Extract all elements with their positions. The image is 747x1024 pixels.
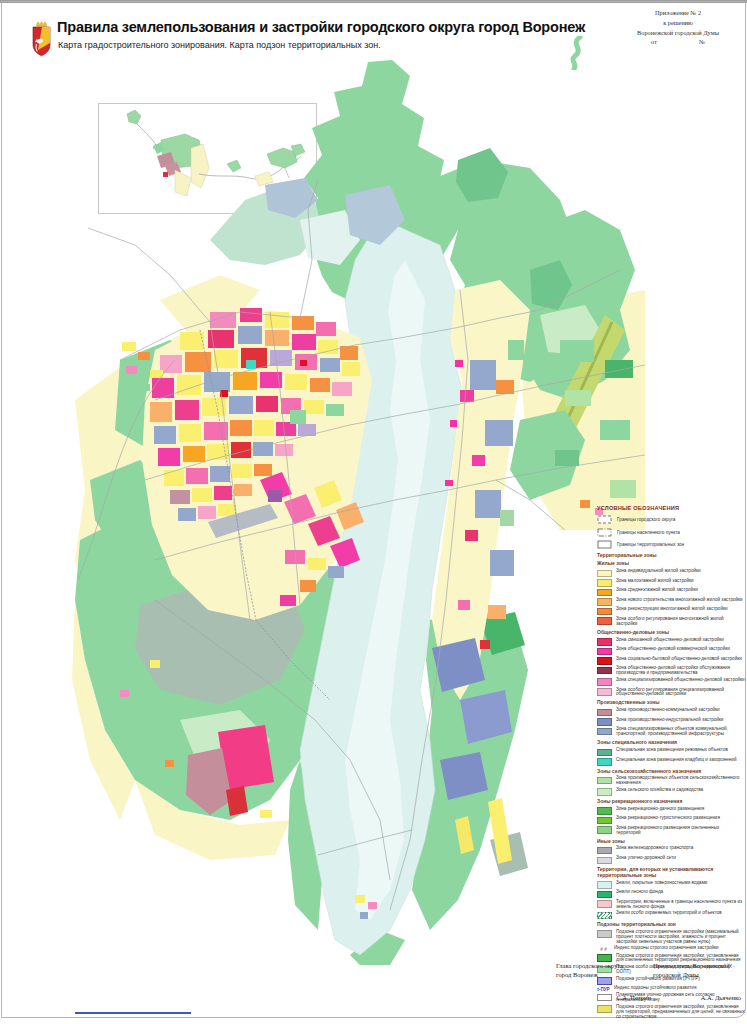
legend-label: Зона производственно-коммунальной застро… bbox=[616, 708, 720, 713]
legend-item: Специальная зона размещения кладбищ и за… bbox=[597, 758, 745, 766]
legend-item: Зона особого регулирования многоэтажной … bbox=[597, 617, 745, 627]
legend-boundary-item: Границы территориальных зон bbox=[597, 540, 745, 549]
legend-color-swatch bbox=[597, 728, 612, 736]
legend-color-swatch bbox=[597, 930, 612, 938]
legend-boundary-item: Границы городского округа bbox=[597, 515, 745, 524]
legend-label: Зона реконструкции многоэтажной жилой за… bbox=[616, 607, 728, 612]
legend-item: Земли лесного фонда bbox=[597, 890, 745, 898]
page-subtitle: Карта градостроительного зонирования. Ка… bbox=[58, 40, 381, 50]
legend-item: Зона особого регулирования специализиров… bbox=[597, 688, 745, 698]
legend-label: Зона общественно-деловой застройки обслу… bbox=[616, 666, 745, 676]
legend-item: Подзона строгого ограничения застройки (… bbox=[597, 930, 745, 945]
page-top-edge bbox=[0, 0, 747, 3]
legend-color-swatch bbox=[597, 678, 612, 686]
legend-label: Зона особого регулирования специализиров… bbox=[616, 688, 745, 698]
legend-label: Зона сельского хозяйства и садоводства bbox=[616, 788, 703, 793]
legend-color-swatch bbox=[597, 912, 612, 920]
legend-item: Зона специализированных объектов коммуна… bbox=[597, 727, 745, 737]
legend-item: Зона производственно-коммунальной застро… bbox=[597, 708, 745, 716]
legend-label: Зона рекреационно-дачного размещения bbox=[616, 807, 704, 812]
legend-section-header: Территории, для которых не устанавливают… bbox=[597, 867, 745, 879]
legend-label: Территории, включенные в границы населен… bbox=[616, 900, 745, 910]
legend-label: Границы территориальных зон bbox=[617, 542, 684, 547]
legend-section-header: Иные зоны bbox=[597, 839, 745, 845]
legend-section-header: Территориальные зоны bbox=[597, 553, 745, 559]
legend-label: Зона смешанной общественно-деловой застр… bbox=[616, 638, 724, 643]
legend-item: Зона среднеэтажной жилой застройки bbox=[597, 588, 745, 596]
legend-section-header: Жилые зоны bbox=[597, 561, 745, 567]
legend-label: Зона малоэтажной жилой застройки bbox=[616, 579, 694, 584]
legend-color-swatch bbox=[597, 826, 612, 834]
legend-color-swatch bbox=[597, 954, 612, 962]
legend-color-swatch bbox=[597, 891, 612, 899]
map-sheet-page: Правила землепользования и застройки гор… bbox=[0, 0, 747, 1024]
legend-color-swatch bbox=[597, 648, 612, 656]
legend-label: Границы населенного пункта bbox=[617, 530, 680, 535]
legend-item: Зона индивидуальной жилой застройки bbox=[597, 569, 745, 577]
legend-label: Зона железнодорожного транспорта bbox=[616, 846, 693, 851]
legend-item: Зона улично-дорожной сети bbox=[597, 856, 745, 864]
legend-color-swatch bbox=[597, 788, 612, 796]
legend-color-swatch bbox=[597, 589, 612, 597]
legend-item: Зона рекреационно-туристического размеще… bbox=[597, 816, 745, 824]
boundary-swatch-icon bbox=[597, 540, 612, 549]
legend-color-swatch bbox=[597, 758, 612, 766]
legend-item: Специальная зона размещения режимных объ… bbox=[597, 748, 745, 756]
legend-color-swatch bbox=[597, 817, 612, 825]
legend-label: Земли лесного фонда bbox=[616, 890, 663, 895]
legend-section-header: Подзоны территориальных зон bbox=[597, 922, 745, 928]
legend-title: УСЛОВНЫЕ ОБОЗНАЧЕНИЯ bbox=[597, 505, 745, 511]
legend-label: Земли особо охраняемых территорий и объе… bbox=[616, 911, 722, 916]
legend-section-header: Общественно-деловые зоны bbox=[597, 630, 745, 636]
legend-item: Зона реконструкции многоэтажной жилой за… bbox=[597, 607, 745, 615]
legend-item: Зона социально-бытовой общественно-делов… bbox=[597, 657, 745, 665]
legend-item: Подзона строгого ограничения застройки, … bbox=[597, 1005, 745, 1020]
legend-color-swatch bbox=[597, 709, 612, 717]
legend-item: Зона смешанной общественно-деловой застр… bbox=[597, 638, 745, 646]
legend-label: Зона рекреационно-туристического размеще… bbox=[616, 816, 720, 821]
legend-label: Земли, покрытые поверхностными водами bbox=[616, 881, 707, 886]
legend-color-swatch bbox=[597, 638, 612, 646]
legend-label: Подзона строгого ограничения застройки (… bbox=[616, 930, 745, 945]
legend-color-swatch bbox=[597, 667, 612, 675]
legend-color-swatch bbox=[597, 1005, 612, 1013]
annex-line-2: к решению bbox=[617, 18, 739, 28]
legend-color-swatch bbox=[597, 657, 612, 665]
legend-label: Зона среднеэтажной жилой застройки bbox=[616, 588, 698, 593]
legend-item: Зона железнодорожного транспорта bbox=[597, 846, 745, 854]
legend-section-header: Производственные зоны bbox=[597, 700, 745, 706]
legend-color-swatch bbox=[597, 688, 612, 696]
legend-label: Зона особого регулирования многоэтажной … bbox=[616, 617, 745, 627]
legend-label: Зона производственно-индустриальной заст… bbox=[616, 718, 723, 723]
legend-label: Зона рекреационного размещения озелененн… bbox=[616, 826, 745, 836]
legend-index-label: # # bbox=[597, 947, 610, 952]
legend-panel: УСЛОВНЫЕ ОБОЗНАЧЕНИЯ Границы городского … bbox=[597, 505, 745, 1021]
legend-boundary-item: Границы населенного пункта bbox=[597, 528, 745, 537]
signature-name: А.А. Дьяченко bbox=[653, 994, 741, 1001]
legend-item: Зона нового строительства многоэтажной ж… bbox=[597, 598, 745, 606]
legend-color-swatch bbox=[597, 598, 612, 606]
legend-item: Зона производственных объектов сельскохо… bbox=[597, 776, 745, 786]
annex-line-4: от № bbox=[617, 37, 739, 47]
legend-label: Зона специализированной общественно-дело… bbox=[616, 678, 745, 683]
legend-item: Территории, включенные в границы населен… bbox=[597, 900, 745, 910]
signature-name: С.А. Петрин bbox=[556, 994, 651, 1001]
annex-block: Приложение № 2 к решению Воронежской гор… bbox=[617, 8, 739, 47]
signature-block-mayor: Глава городского округа город Воронеж С.… bbox=[556, 962, 651, 1001]
legend-label: Зона специализированных объектов коммуна… bbox=[616, 727, 745, 737]
legend-label: Специальная зона размещения кладбищ и за… bbox=[616, 758, 736, 763]
legend-color-swatch bbox=[597, 777, 612, 785]
annex-number-label: № bbox=[699, 37, 705, 47]
legend-color-swatch bbox=[597, 881, 612, 889]
legend-item: Зона рекреационно-дачного размещения bbox=[597, 807, 745, 815]
legend-label: Зона индивидуальной жилой застройки bbox=[616, 569, 701, 574]
legend-color-swatch bbox=[597, 570, 612, 578]
legend-item: Зона рекреационного размещения озелененн… bbox=[597, 826, 745, 836]
legend-item: # #Индекс подзоны строгого ограничения з… bbox=[597, 946, 745, 952]
legend-color-swatch bbox=[597, 847, 612, 855]
legend-color-swatch bbox=[597, 579, 612, 587]
legend-body: Границы городского округаГраницы населен… bbox=[597, 515, 745, 1020]
boundary-swatch-icon bbox=[597, 528, 612, 537]
bottom-blue-line bbox=[75, 1012, 191, 1014]
legend-label: Границы городского округа bbox=[617, 517, 675, 522]
legend-color-swatch bbox=[597, 617, 612, 625]
legend-section-header: Зоны специального назначения bbox=[597, 740, 745, 746]
legend-item: Зона малоэтажной жилой застройки bbox=[597, 579, 745, 587]
legend-color-swatch bbox=[597, 608, 612, 616]
legend-item: Зона общественно-деловой коммерческой за… bbox=[597, 647, 745, 655]
legend-item: Зона специализированной общественно-дело… bbox=[597, 678, 745, 686]
legend-label: Зона улично-дорожной сети bbox=[616, 856, 676, 861]
legend-color-swatch bbox=[597, 749, 612, 757]
legend-section-header: Зоны рекреационного назначения bbox=[597, 799, 745, 805]
legend-label: Зона социально-бытовой общественно-делов… bbox=[616, 657, 742, 662]
legend-label: Специальная зона размещения режимных объ… bbox=[616, 748, 728, 753]
legend-color-swatch bbox=[597, 900, 612, 908]
legend-label: Зона общественно-деловой коммерческой за… bbox=[616, 647, 730, 652]
boundary-swatch-icon bbox=[597, 515, 612, 524]
legend-item: Земли особо охраняемых территорий и объе… bbox=[597, 911, 745, 919]
legend-color-swatch bbox=[597, 857, 612, 865]
signature-block-duma-chair: Председатель Воронежской городской Думы … bbox=[653, 962, 741, 1001]
legend-label: Зона производственных объектов сельскохо… bbox=[616, 776, 745, 786]
page-title: Правила землепользования и застройки гор… bbox=[57, 19, 585, 35]
legend-section-header: Зоны сельскохозяйственного назначения bbox=[597, 769, 745, 775]
legend-item: Зона сельского хозяйства и садоводства bbox=[597, 788, 745, 796]
legend-color-swatch bbox=[597, 807, 612, 815]
zoning-map bbox=[60, 60, 645, 965]
legend-item: Зона общественно-деловой застройки обслу… bbox=[597, 666, 745, 676]
annex-line-1: Приложение № 2 bbox=[617, 8, 739, 18]
signature-title: Глава городского округа город Воронеж bbox=[556, 962, 651, 980]
coat-of-arms-icon bbox=[30, 21, 53, 58]
legend-label: Подзона строгого ограничения застройки, … bbox=[616, 1005, 745, 1020]
legend-label: Зона нового строительства многоэтажной ж… bbox=[616, 598, 743, 603]
legend-item: Зона производственно-индустриальной заст… bbox=[597, 718, 745, 726]
signature-title: Председатель Воронежской городской Думы bbox=[653, 962, 741, 980]
annex-line-3: Воронежской городской Думы bbox=[617, 28, 739, 38]
legend-color-swatch bbox=[597, 718, 612, 726]
legend-label: Индекс подзоны строгого ограничения заст… bbox=[614, 946, 719, 951]
annex-from-label: от bbox=[651, 37, 657, 47]
legend-item: Земли, покрытые поверхностными водами bbox=[597, 881, 745, 889]
